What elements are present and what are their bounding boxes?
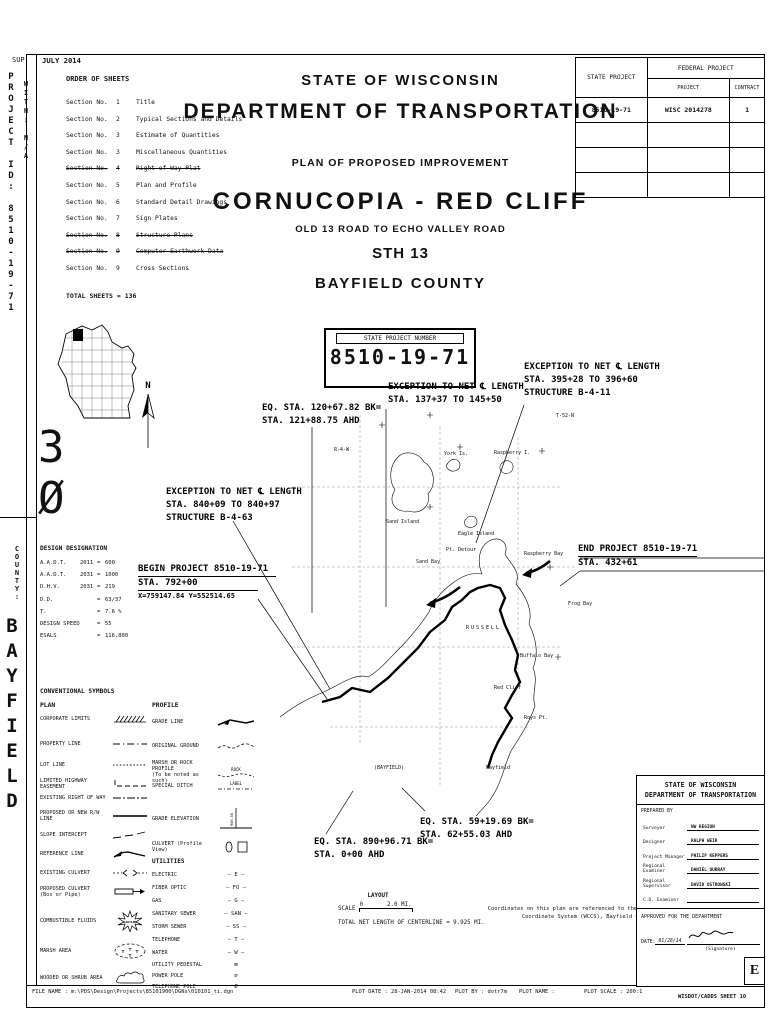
margin-with-id: WITH: N/A [22, 80, 30, 340]
note-end-project: END PROJECT 8510-19-71 STA. 432+61 [578, 543, 697, 570]
map-label-russell: RUSSELL [466, 625, 501, 631]
water-line-symbol: — W — [216, 950, 256, 956]
symbol-row-slope-intercept: SLOPE INTERCEPT [40, 830, 148, 840]
map-label-pt-detour: Pt. Detour [446, 547, 476, 553]
culvert-profile-symbol-icon [216, 840, 256, 854]
note-begin-project: BEGIN PROJECT 8510-19-71 STA. 792+00 X=7… [138, 563, 276, 601]
existing-culvert-symbol-icon [112, 868, 148, 878]
title-plan-sheet: SUP PROJECT ID: 8510-19-71 WITH: N/A 3Ø … [0, 0, 770, 1024]
scale-label: SCALE [338, 906, 355, 912]
project-route-line [322, 585, 520, 768]
symbol-row-culvert-profile: CULVERT (Profile View) [152, 840, 256, 854]
title-county: BAYFIELD COUNTY [36, 275, 765, 292]
proposed-rw-line-symbol-icon [112, 812, 148, 820]
title-limits: OLD 13 ROAD TO ECHO VALLEY ROAD [36, 224, 765, 235]
property-line-symbol-icon [112, 740, 148, 748]
map-label-york-island: York Is. [444, 451, 468, 457]
project-id-table: STATE PROJECT FEDERAL PROJECT PROJECT CO… [575, 57, 765, 198]
wooded-area-symbol-icon [112, 970, 148, 986]
symbol-row-proposed-rw: PROPOSED OR NEW R/W LINE [40, 810, 148, 822]
design-row: T.=7.6 % [40, 609, 152, 621]
approval-block: STATE OF WISCONSIN DEPARTMENT OF TRANSPO… [636, 775, 765, 987]
approval-title: STATE OF WISCONSIN DEPARTMENT OF TRANSPO… [637, 776, 764, 805]
map-label-roys-pt: Roys Pt. [524, 715, 548, 721]
proposed-culvert-symbol-icon [112, 886, 148, 898]
approval-row-designer: DesignerRALPH WEIR [643, 831, 759, 846]
empty-cell [647, 173, 729, 198]
footer-plot-scale: PLOT SCALE : 200:1 [584, 989, 642, 995]
svg-text:946.50: 946.50 [230, 813, 234, 826]
margin-county-label: COUNTY: [13, 545, 21, 615]
layout-title: LAYOUT [338, 893, 418, 899]
note-exception-840: EXCEPTION TO NET ℄ LENGTH STA. 840+09 TO… [166, 486, 302, 525]
lot-line-symbol-icon [112, 761, 148, 769]
symbol-row-corporate-limits: CORPORATE LIMITS [40, 714, 148, 724]
utility-row-sanitary-sewer: SANITARY SEWER— SAN — [152, 911, 256, 917]
contract-value: 1 [730, 98, 765, 123]
federal-project-header: FEDERAL PROJECT [647, 58, 764, 79]
symbol-row-combustible-fluids: COMBUSTIBLE FLUIDS CAUTION [40, 910, 148, 932]
note-eq-59: EQ. STA. 59+19.69 BK= STA. 62+55.03 AHD [420, 816, 534, 842]
approval-row-regional-examiner: Regional ExaminerDANIEL OUBRAY [643, 860, 759, 875]
grade-elevation-symbol-icon: 946.50 [216, 806, 256, 832]
footer-plot-name: PLOT NAME : [519, 989, 555, 995]
map-label-raspberry-island: Raspberry I. [494, 450, 530, 456]
design-row: D.D.=63/37 [40, 597, 152, 609]
empty-cell [576, 148, 648, 173]
power-pole-symbol: ⌀ [216, 973, 256, 979]
map-label-raspberry-bay: Raspberry Bay [524, 551, 563, 557]
shoreline [280, 539, 536, 816]
design-row: A.A.D.T.2031=1000 [40, 572, 152, 584]
combustible-fluids-caution-icon: CAUTION [112, 910, 148, 932]
symbols-title: CONVENTIONAL SYMBOLS [40, 688, 300, 695]
empty-cell [576, 123, 648, 148]
map-label-eagle-island: Eagle Island [458, 531, 494, 537]
caution-text: CAUTION [124, 920, 137, 924]
symbol-row-property-line: PROPERTY LINE [40, 740, 148, 748]
scale-max: 2.0 MI. [387, 902, 411, 908]
marsh-area-symbol-icon [112, 942, 148, 960]
utility-row-storm-sewer: STORM SEWER— SS — [152, 924, 256, 930]
special-ditch-symbol-icon: LABEL [216, 780, 256, 792]
order-total: TOTAL SHEETS = 136 [66, 292, 296, 300]
limited-highway-easement-symbol-icon [112, 779, 148, 789]
federal-project-value: WISC 2014278 [647, 98, 729, 123]
empty-cell [576, 173, 648, 198]
design-row: ESALS=116,800 [40, 633, 152, 645]
utility-row-pedestal: UTILITY PEDESTAL⊠ [152, 962, 256, 968]
project-header: PROJECT [647, 79, 729, 98]
footer-plot-by: PLOT BY : dotr7m [455, 989, 507, 995]
scale-bar [359, 908, 413, 912]
bayfield-county-highlight [73, 329, 83, 341]
symbol-row-original-ground: ORIGINAL GROUND [152, 740, 256, 752]
profile-heading: PROFILE [152, 702, 179, 709]
grade-line-symbol-icon [216, 716, 256, 728]
signature-line [687, 928, 760, 945]
title-highway: STH 13 [36, 245, 765, 262]
footer-sheet-ref: WISDOT/CADDS SHEET 10 [678, 994, 746, 1000]
note-eq-120: EQ. STA. 120+67.82 BK= STA. 121+88.75 AH… [262, 402, 381, 428]
state-project-value: 8510-19-71 [576, 98, 648, 123]
approval-date-row: DATE: 01/28/14 [641, 928, 760, 945]
order-row: Section No.3Estimate of Quantities [66, 132, 296, 149]
utility-row-gas: GAS— G — [152, 898, 256, 904]
symbol-row-grade-line: GRADE LINE [152, 716, 256, 728]
utility-row-power-pole: POWER POLE⌀ [152, 973, 256, 979]
footer-plot-date: PLOT DATE : 28-JAN-2014 08:42 [352, 989, 446, 995]
symbol-row-wooded-area: WOODED OR SHRUB AREA [40, 970, 148, 986]
note-exception-395: EXCEPTION TO NET ℄ LENGTH STA. 395+28 TO… [524, 361, 660, 400]
approval-date: 01/28/14 [655, 939, 684, 945]
design-designation: DESIGN DESIGNATION A.A.D.T.2011=600 A.A.… [40, 545, 152, 645]
spn-label: STATE PROJECT NUMBER [336, 333, 464, 344]
symbol-row-proposed-culvert: PROPOSED CULVERT(Box or Pipe) [40, 886, 148, 898]
symbol-row-reference-line: REFERENCE LINE [40, 848, 148, 860]
approval-row-surveyor: SurveyorNW REGION [643, 816, 759, 831]
empty-cell [730, 173, 765, 198]
design-designation-title: DESIGN DESIGNATION [40, 545, 152, 552]
prepared-by-label: PREPARED BY [641, 809, 764, 814]
symbol-row-marsh-area: MARSH AREA [40, 942, 148, 960]
map-label-t52n: T-52-N [556, 413, 574, 419]
empty-cell [730, 123, 765, 148]
map-label-sand-island: Sand Island [386, 519, 419, 525]
signature-caption: (Signature) [677, 947, 764, 952]
date-label: DATE: [641, 940, 655, 945]
design-row: DESIGN SPEED=55 [40, 621, 152, 633]
corporate-limits-symbol-icon [112, 714, 148, 724]
map-label-bayfield: Bayfield [486, 765, 510, 771]
approval-row-regional-supervisor: Regional SupervisorDAVID OSTROWSKI [643, 874, 759, 889]
symbol-row-limited-hwy-easement: LIMITED HIGHWAY EASEMENT [40, 778, 148, 790]
sup-label: SUP [12, 56, 25, 64]
approval-row-co-examiner: C.O. Examiner [643, 889, 759, 904]
symbol-row-existing-row: EXISTING RIGHT OF WAY [40, 794, 148, 802]
gas-line-symbol: — G — [216, 898, 256, 904]
utility-row-electric: ELECTRIC— E — [152, 872, 256, 878]
sanitary-sewer-line-symbol: — SAN — [216, 911, 256, 917]
approved-for-department: APPROVED FOR THE DEPARTMENT [637, 908, 764, 920]
utility-row-water: WATER— W — [152, 950, 256, 956]
note-exception-137: EXCEPTION TO NET ℄ LENGTH STA. 137+37 TO… [388, 381, 524, 407]
design-row: D.H.V.2031=219 [40, 584, 152, 596]
design-row: A.A.D.T.2011=600 [40, 560, 152, 572]
utility-row-telephone: TELEPHONE— T — [152, 937, 256, 943]
signature-scribble-icon [687, 928, 735, 942]
issue-date: JULY 2014 [42, 56, 81, 65]
map-label-frog-bay: Frog Bay [568, 601, 592, 607]
symbol-row-existing-culvert: EXISTING CULVERT [40, 868, 148, 878]
scale-zero: 0 [359, 902, 363, 908]
footer-file-name: FILE NAME : m:\PDS\Design\Projects\85101… [32, 989, 233, 995]
symbol-row-grade-elevation: GRADE ELEVATION 946.50 [152, 806, 256, 832]
margin-project-id: PROJECT ID: 8510-19-71 [6, 72, 16, 372]
slope-intercept-symbol-icon [112, 830, 148, 840]
utility-pedestal-symbol: ⊠ [216, 962, 256, 968]
telephone-line-symbol: — T — [216, 937, 256, 943]
note-eq-890: EQ. STA. 890+96.71 BK= STA. 0+00 AHD [314, 836, 433, 862]
symbol-row-special-ditch: SPECIAL DITCH LABEL [152, 780, 256, 792]
utilities-heading: UTILITIES [152, 858, 185, 865]
marsh-rock-profile-symbol-icon: ROCK [216, 765, 256, 779]
map-label-r4w: R-4-W [334, 447, 350, 453]
map-label-buffalo-bay: Buffalo Bay [520, 653, 553, 659]
original-ground-symbol-icon [216, 740, 256, 752]
map-label-sand-bay: Sand Bay [416, 559, 440, 565]
electric-line-symbol: — E — [216, 872, 256, 878]
ditch-label-text: LABEL [230, 781, 243, 786]
storm-sewer-line-symbol: — SS — [216, 924, 256, 930]
rock-text: ROCK [231, 767, 241, 772]
margin-big-number: 3Ø [30, 422, 66, 531]
conventional-symbols: CONVENTIONAL SYMBOLS PLAN PROFILE CORPOR… [40, 688, 300, 986]
reference-line-symbol-icon [112, 848, 148, 860]
map-label-red-cliff: Red Cliff [494, 685, 521, 691]
approval-row-project-manager: Project ManagerPHILIP KEPPERS [643, 845, 759, 860]
utility-row-fiber-optic: FIBER OPTIC— FO — [152, 885, 256, 891]
contract-header: CONTRACT [730, 79, 765, 98]
empty-cell [647, 148, 729, 173]
existing-right-of-way-symbol-icon [112, 794, 148, 802]
sheet-letter-box: E [744, 957, 765, 985]
fiber-optic-line-symbol: — FO — [216, 885, 256, 891]
empty-cell [647, 123, 729, 148]
symbol-row-lot-line: LOT LINE [40, 761, 148, 769]
map-label-bayfield-town: (BAYFIELD) [374, 765, 404, 771]
margin-county-name: BAYFIELD [1, 615, 23, 825]
empty-cell [730, 148, 765, 173]
state-project-header: STATE PROJECT [576, 58, 648, 98]
plan-heading: PLAN [40, 702, 55, 709]
